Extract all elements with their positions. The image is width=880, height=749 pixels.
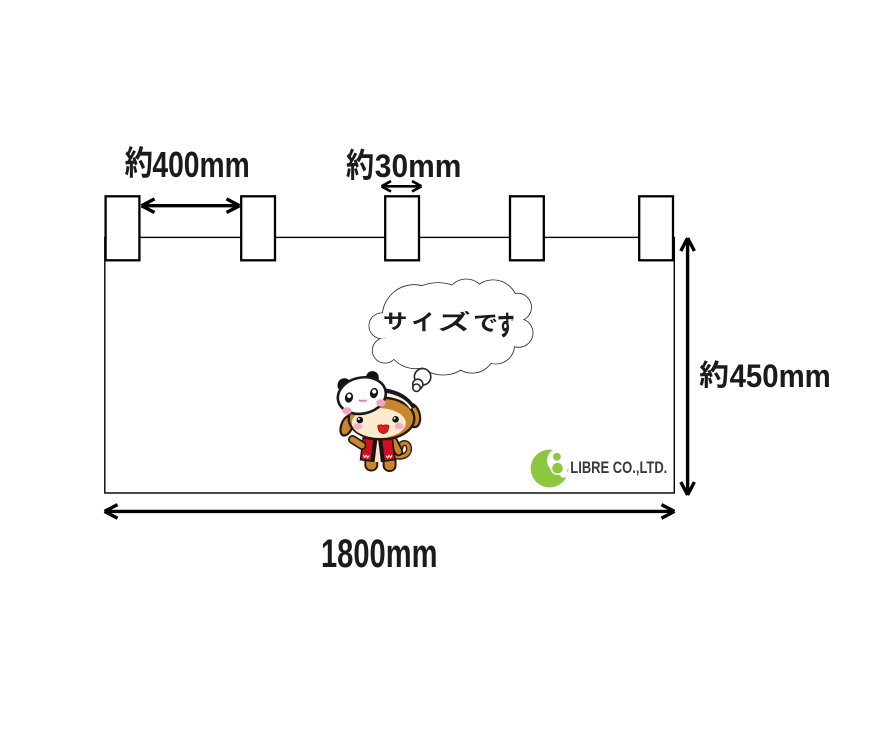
svg-text:450mm: 450mm bbox=[730, 357, 831, 394]
svg-text:30mm: 30mm bbox=[375, 148, 462, 184]
svg-text:LIBRE CO.,LTD.: LIBRE CO.,LTD. bbox=[570, 459, 667, 477]
svg-text:1800mm: 1800mm bbox=[321, 532, 438, 576]
svg-text:400mm: 400mm bbox=[152, 144, 249, 185]
